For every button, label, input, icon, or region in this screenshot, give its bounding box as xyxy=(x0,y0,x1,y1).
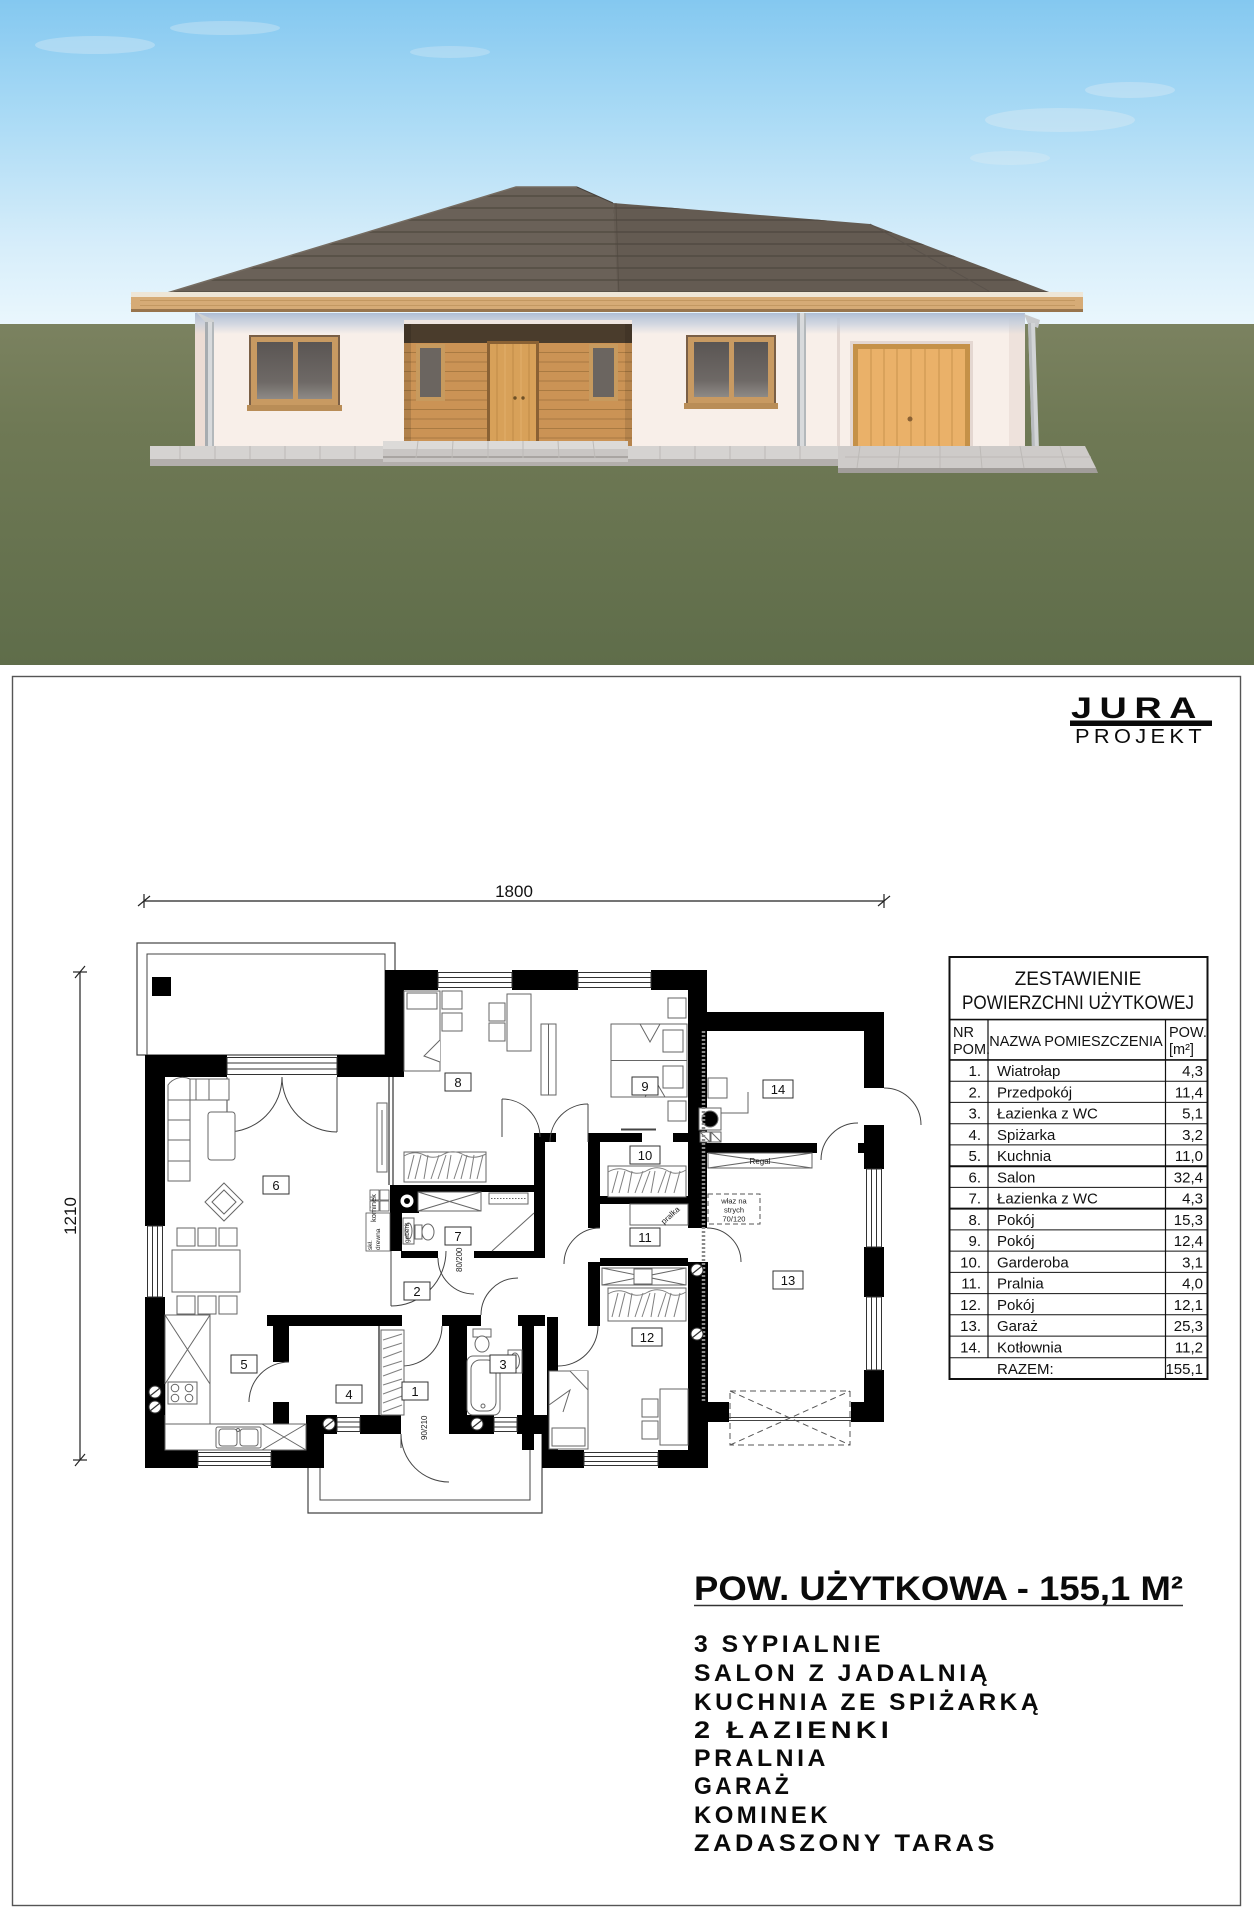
svg-text:4: 4 xyxy=(345,1387,352,1402)
svg-text:3,1: 3,1 xyxy=(1182,1254,1203,1271)
svg-text:10.: 10. xyxy=(960,1254,981,1271)
svg-text:Łazienka z WC: Łazienka z WC xyxy=(997,1191,1098,1208)
svg-text:14.: 14. xyxy=(960,1339,981,1356)
svg-text:kominek: kominek xyxy=(369,1194,378,1222)
svg-text:Kuchnia: Kuchnia xyxy=(997,1148,1052,1165)
svg-text:1210: 1210 xyxy=(61,1197,80,1235)
svg-text:3 SYPIALNIE: 3 SYPIALNIE xyxy=(694,1631,884,1658)
svg-text:4.: 4. xyxy=(968,1127,981,1144)
svg-text:6: 6 xyxy=(272,1178,279,1193)
svg-text:4,3: 4,3 xyxy=(1182,1191,1203,1208)
svg-text:Spiżarka: Spiżarka xyxy=(997,1127,1056,1144)
svg-text:3: 3 xyxy=(499,1357,506,1372)
svg-text:PRALNIA: PRALNIA xyxy=(694,1745,829,1772)
svg-text:JURA: JURA xyxy=(1071,692,1204,725)
svg-text:10: 10 xyxy=(638,1148,652,1163)
svg-text:Przedpokój: Przedpokój xyxy=(997,1084,1072,1101)
svg-text:12.: 12. xyxy=(960,1297,981,1314)
svg-text:ZESTAWIENIE: ZESTAWIENIE xyxy=(1015,969,1142,990)
svg-text:Garderoba: Garderoba xyxy=(997,1254,1069,1271)
svg-text:1: 1 xyxy=(411,1384,418,1399)
svg-text:POW. UŻYTKOWA - 155,1 M²: POW. UŻYTKOWA - 155,1 M² xyxy=(694,1570,1183,1608)
svg-text:drewna: drewna xyxy=(375,1228,382,1250)
svg-text:11: 11 xyxy=(638,1230,652,1245)
svg-text:Pokój: Pokój xyxy=(997,1212,1035,1229)
svg-text:9.: 9. xyxy=(968,1233,981,1250)
svg-text:25,3: 25,3 xyxy=(1174,1318,1203,1335)
svg-text:Pokój: Pokój xyxy=(997,1233,1035,1250)
svg-text:3,2: 3,2 xyxy=(1182,1127,1203,1144)
svg-text:Kotłownia: Kotłownia xyxy=(997,1339,1063,1356)
svg-text:7: 7 xyxy=(454,1229,461,1244)
svg-text:Garaż: Garaż xyxy=(997,1318,1038,1335)
svg-text:POW.: POW. xyxy=(1169,1025,1207,1041)
svg-text:[m²]: [m²] xyxy=(1169,1042,1194,1058)
svg-text:13.: 13. xyxy=(960,1318,981,1335)
svg-text:12,1: 12,1 xyxy=(1174,1297,1203,1314)
svg-text:6.: 6. xyxy=(968,1169,981,1186)
svg-text:5,1: 5,1 xyxy=(1182,1106,1203,1123)
svg-text:15,3: 15,3 xyxy=(1174,1212,1203,1229)
svg-text:8: 8 xyxy=(454,1075,461,1090)
svg-text:7.: 7. xyxy=(968,1191,981,1208)
svg-text:SALON Z JADALNIĄ: SALON Z JADALNIĄ xyxy=(694,1660,991,1687)
svg-text:13: 13 xyxy=(781,1273,795,1288)
svg-text:4,3: 4,3 xyxy=(1182,1063,1203,1080)
svg-text:KOMINEK: KOMINEK xyxy=(694,1802,831,1829)
svg-text:5: 5 xyxy=(240,1357,247,1372)
svg-text:8.: 8. xyxy=(968,1212,981,1229)
svg-text:11.: 11. xyxy=(961,1276,981,1293)
svg-text:80/200: 80/200 xyxy=(455,1247,464,1272)
svg-text:11,2: 11,2 xyxy=(1175,1339,1203,1356)
svg-text:11,0: 11,0 xyxy=(1175,1148,1203,1165)
svg-text:14: 14 xyxy=(771,1082,785,1097)
svg-text:geberit: geberit xyxy=(404,1223,411,1243)
svg-text:skł.: skł. xyxy=(367,1240,374,1250)
svg-text:11,4: 11,4 xyxy=(1175,1084,1203,1101)
svg-text:2 ŁAZIENKI: 2 ŁAZIENKI xyxy=(694,1717,893,1744)
svg-text:12,4: 12,4 xyxy=(1174,1233,1203,1250)
svg-text:Salon: Salon xyxy=(997,1169,1035,1186)
svg-text:2: 2 xyxy=(413,1284,420,1299)
svg-text:4,0: 4,0 xyxy=(1182,1276,1203,1293)
svg-text:12: 12 xyxy=(640,1330,654,1345)
svg-text:właz na: właz na xyxy=(720,1197,747,1206)
svg-text:RAZEM:: RAZEM: xyxy=(997,1361,1054,1378)
svg-text:Regal: Regal xyxy=(750,1157,771,1166)
svg-text:NAZWA POMIESZCZENIA: NAZWA POMIESZCZENIA xyxy=(989,1034,1163,1050)
svg-text:3.: 3. xyxy=(968,1106,981,1123)
svg-text:NR: NR xyxy=(953,1025,974,1041)
svg-text:9: 9 xyxy=(641,1079,648,1094)
svg-text:Pralnia: Pralnia xyxy=(997,1276,1044,1293)
svg-text:1800: 1800 xyxy=(495,882,533,901)
svg-text:70/120: 70/120 xyxy=(723,1215,746,1224)
svg-text:90/210: 90/210 xyxy=(420,1415,429,1440)
svg-text:GARAŻ: GARAŻ xyxy=(694,1773,792,1800)
svg-text:PROJEKT: PROJEKT xyxy=(1075,726,1206,748)
svg-text:strych: strych xyxy=(724,1206,744,1215)
svg-text:2.: 2. xyxy=(968,1084,981,1101)
svg-text:32,4: 32,4 xyxy=(1174,1169,1203,1186)
svg-text:Pokój: Pokój xyxy=(997,1297,1035,1314)
svg-text:5.: 5. xyxy=(968,1148,981,1165)
svg-text:POM.: POM. xyxy=(953,1042,990,1058)
svg-text:KUCHNIA ZE SPIŻARKĄ: KUCHNIA ZE SPIŻARKĄ xyxy=(694,1689,1042,1716)
svg-text:155,1: 155,1 xyxy=(1165,1361,1203,1378)
svg-text:Wiatrołap: Wiatrołap xyxy=(997,1063,1060,1080)
svg-text:1.: 1. xyxy=(968,1063,981,1080)
svg-text:POWIERZCHNI UŻYTKOWEJ: POWIERZCHNI UŻYTKOWEJ xyxy=(962,993,1194,1014)
svg-text:Łazienka z WC: Łazienka z WC xyxy=(997,1106,1098,1123)
svg-text:ZADASZONY TARAS: ZADASZONY TARAS xyxy=(694,1830,998,1857)
